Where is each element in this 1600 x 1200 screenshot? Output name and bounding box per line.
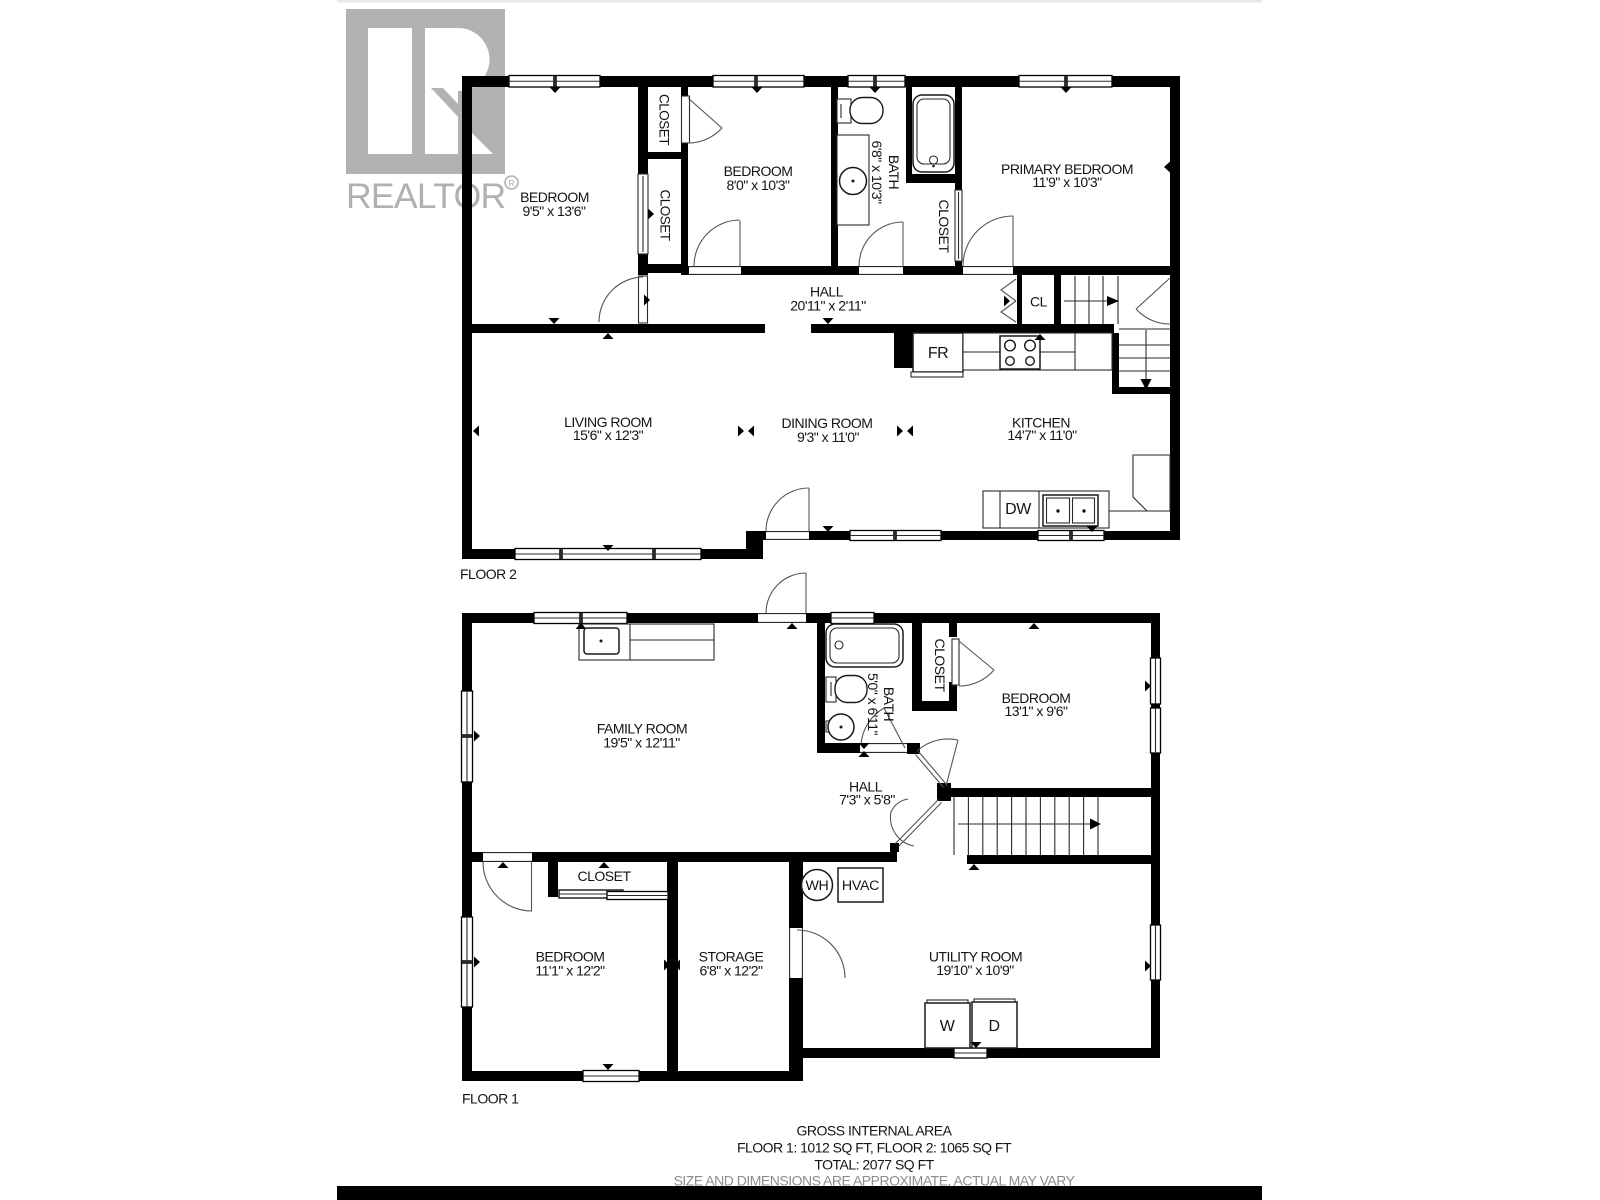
svg-text:CLOSET: CLOSET: [932, 638, 948, 692]
svg-text:FLOOR 2: FLOOR 2: [460, 566, 517, 582]
svg-text:6'8" x 12'2": 6'8" x 12'2": [700, 963, 764, 979]
svg-text:FR: FR: [928, 345, 948, 362]
svg-text:BATH: BATH: [886, 155, 902, 189]
svg-text:CLOSET: CLOSET: [577, 868, 631, 884]
svg-text:TOTAL: 2077 SQ FT: TOTAL: 2077 SQ FT: [814, 1157, 934, 1173]
svg-text:R: R: [508, 179, 515, 189]
svg-text:CL: CL: [1030, 294, 1048, 310]
svg-text:9'3" x 11'0": 9'3" x 11'0": [797, 429, 859, 445]
svg-text:20'11" x 2'11": 20'11" x 2'11": [790, 298, 866, 314]
svg-text:9'5" x 13'6": 9'5" x 13'6": [523, 203, 587, 219]
svg-text:GROSS INTERNAL AREA: GROSS INTERNAL AREA: [797, 1123, 953, 1139]
svg-text:15'6" x 12'3": 15'6" x 12'3": [573, 427, 644, 443]
svg-text:CLOSET: CLOSET: [936, 199, 952, 253]
svg-text:14'7" x 11'0": 14'7" x 11'0": [1007, 427, 1077, 443]
svg-text:FLOOR 1: 1012 SQ FT, FLOOR 2:: FLOOR 1: 1012 SQ FT, FLOOR 2: 1065 SQ FT: [737, 1140, 1012, 1156]
svg-text:HVAC: HVAC: [842, 878, 879, 894]
svg-text:7'3" x 5'8": 7'3" x 5'8": [839, 792, 895, 808]
svg-text:FLOOR 1: FLOOR 1: [462, 1091, 519, 1107]
svg-text:11'9" x 10'3": 11'9" x 10'3": [1032, 174, 1102, 190]
svg-text:W: W: [940, 1018, 956, 1035]
svg-text:6'8" x 10'3": 6'8" x 10'3": [869, 141, 885, 205]
svg-text:CLOSET: CLOSET: [658, 189, 673, 240]
svg-text:DW: DW: [1005, 501, 1032, 518]
svg-text:8'0" x 10'3": 8'0" x 10'3": [727, 177, 791, 193]
svg-text:19'5" x 12'11": 19'5" x 12'11": [603, 735, 680, 751]
svg-text:19'10" x 10'9": 19'10" x 10'9": [936, 962, 1014, 978]
svg-text:BATH: BATH: [881, 687, 897, 721]
svg-text:5'0" x 6'11": 5'0" x 6'11": [865, 673, 881, 735]
svg-text:REALTOR: REALTOR: [346, 176, 506, 216]
svg-text:D: D: [988, 1018, 999, 1035]
svg-text:CLOSET: CLOSET: [657, 94, 672, 145]
svg-text:11'1" x 12'2": 11'1" x 12'2": [535, 963, 605, 979]
svg-text:WH: WH: [805, 878, 828, 894]
svg-text:13'1" x 9'6": 13'1" x 9'6": [1005, 703, 1069, 719]
